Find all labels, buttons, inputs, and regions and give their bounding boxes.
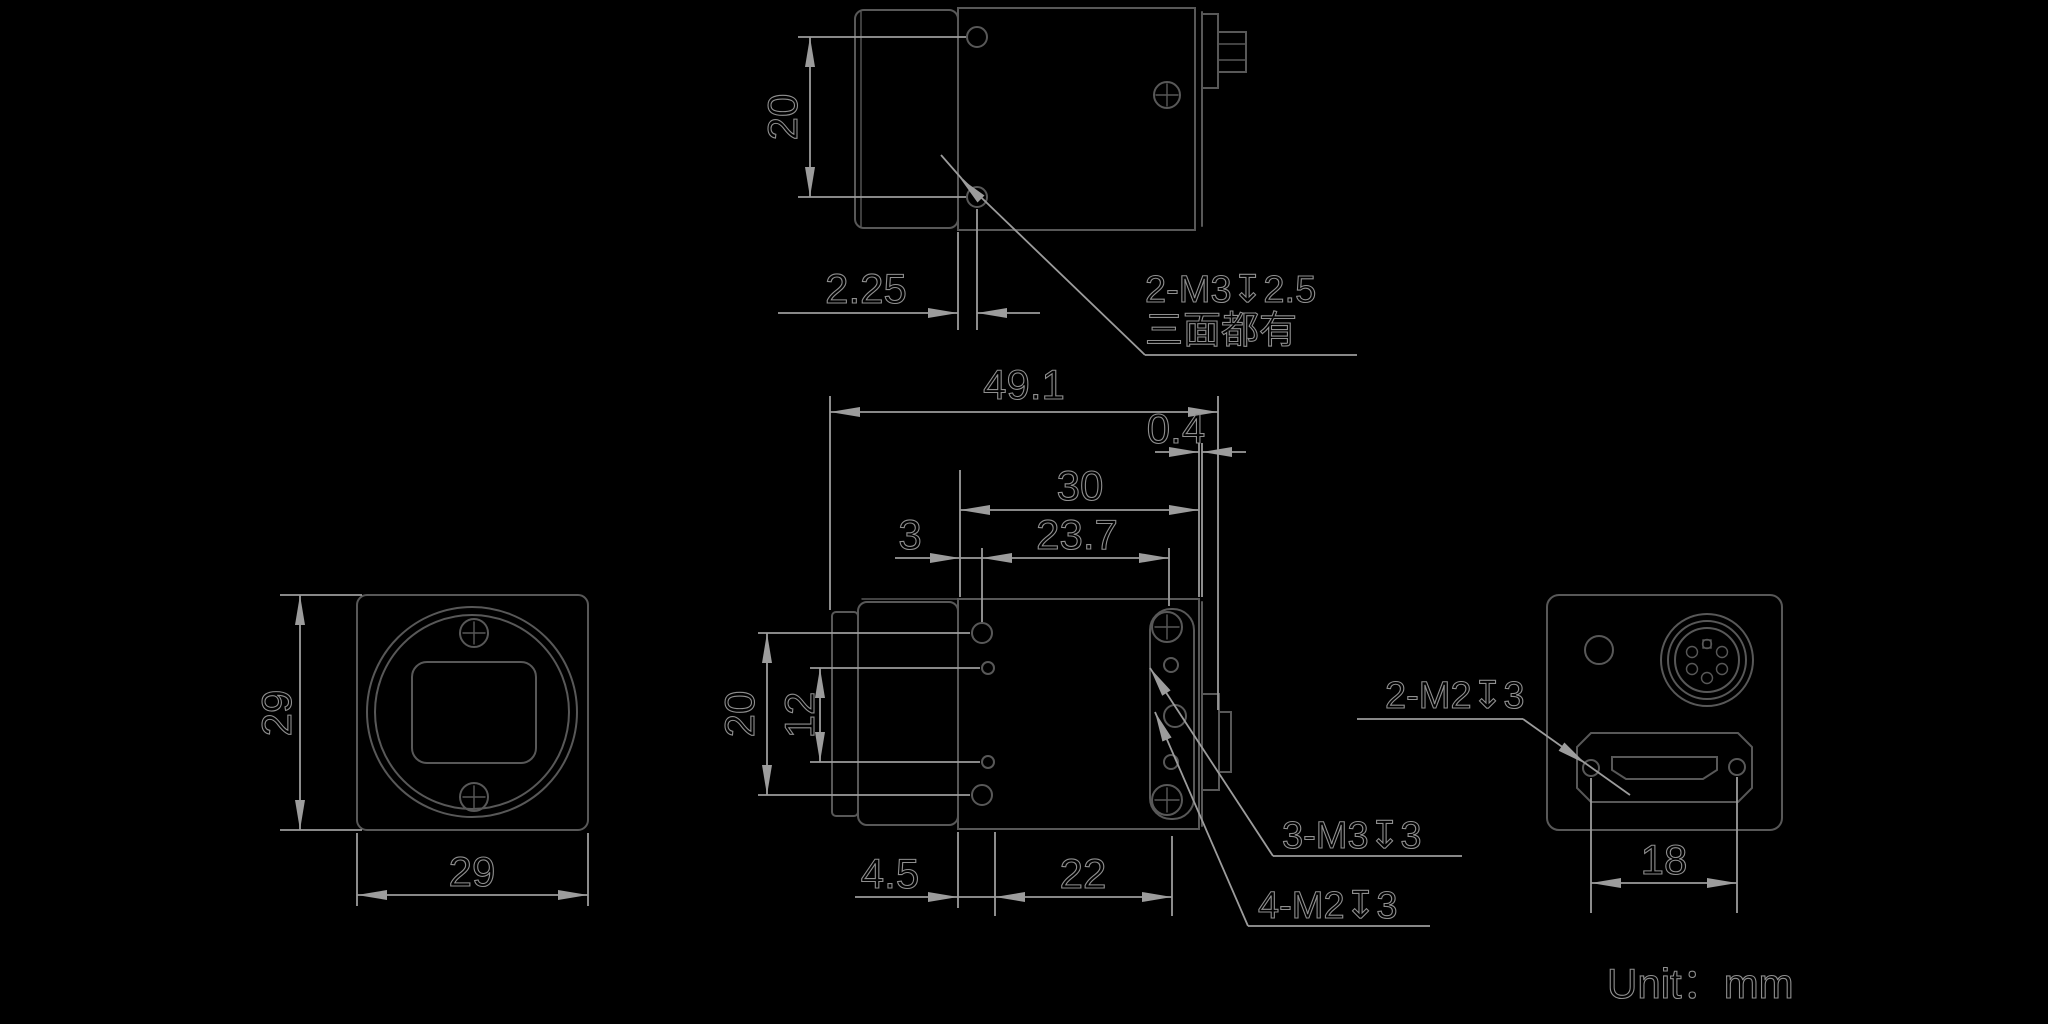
back-plate-m3-hole xyxy=(1164,705,1186,727)
side-view: 49.1 0.4 30 3 23 xyxy=(716,361,1462,927)
connector-pin xyxy=(1687,664,1698,675)
side-view-lens-flange xyxy=(832,612,858,816)
dim-label-top-20: 20 xyxy=(759,94,806,141)
dim-label-12: 12 xyxy=(776,692,823,739)
usb-screw-hole xyxy=(1729,759,1745,775)
front-view: 29 29 xyxy=(253,595,588,906)
note-m2-thread: 4-M2↧3 xyxy=(1258,885,1398,927)
camera-dimension-drawing: 20 2.25 2-M3↧2.5 三面都有 xyxy=(0,0,2048,1024)
top-view-front-plate xyxy=(855,10,958,228)
lens-mount-inner-circle xyxy=(375,615,569,809)
dim-label-49-1: 49.1 xyxy=(983,361,1065,408)
dim-label-3: 3 xyxy=(898,511,921,558)
dim-side-inner-spacing: 12 xyxy=(776,668,980,762)
dim-label-0-4: 0.4 xyxy=(1147,405,1205,452)
back-view: 2-M2↧3 18 xyxy=(1357,595,1782,913)
dim-label-22: 22 xyxy=(1060,850,1107,897)
side-view-body xyxy=(958,599,1199,829)
note-top-thread-line2: 三面都有 xyxy=(1145,310,1297,352)
usb-port-shape xyxy=(1612,757,1717,779)
dim-usb-screw-span: 18 xyxy=(1591,777,1737,913)
note-top-thread-line1: 2-M3↧2.5 xyxy=(1145,269,1316,311)
dim-label-30: 30 xyxy=(1057,462,1104,509)
dim-label-2-25: 2.25 xyxy=(825,265,907,312)
technical-drawing-page: 20 2.25 2-M3↧2.5 三面都有 xyxy=(0,0,2048,1024)
top-view-body xyxy=(958,8,1195,230)
sensor-aperture xyxy=(412,662,536,763)
side-face-m2-hole xyxy=(982,756,994,768)
connector-pin xyxy=(1703,640,1712,649)
usb-recess-outline xyxy=(1577,733,1752,802)
lens-mount-outer-circle xyxy=(367,607,577,817)
dim-bottom-holes: 4.5 22 xyxy=(855,832,1172,916)
top-view-connector-step xyxy=(1202,14,1218,88)
connector-pin xyxy=(1687,647,1698,658)
dim-side-hole-spacing: 20 xyxy=(716,633,970,795)
top-view: 20 2.25 2-M3↧2.5 三面都有 xyxy=(759,8,1357,355)
side-face-m2-hole xyxy=(982,662,994,674)
dim-front-height: 29 xyxy=(253,595,362,830)
top-face-m3-hole xyxy=(967,27,987,47)
note-m3-thread: 3-M3↧3 xyxy=(1282,815,1422,857)
connector-pin xyxy=(1717,647,1728,658)
connector-pin xyxy=(1702,673,1713,684)
back-plate-m2-hole xyxy=(1164,658,1178,672)
back-view-body xyxy=(1547,595,1782,830)
dim-label-side-20: 20 xyxy=(716,691,763,738)
dim-hole-span-and-offset: 3 23.7 xyxy=(895,511,1169,622)
note-back-m2-thread: 2-M2↧3 xyxy=(1385,675,1525,717)
front-view-body xyxy=(357,595,588,830)
side-face-m3-hole xyxy=(972,623,992,643)
dim-top-hole-spacing: 20 xyxy=(759,37,966,197)
dim-label-29-width: 29 xyxy=(449,848,496,895)
dim-label-18: 18 xyxy=(1641,836,1688,883)
unit-label: Unit：mm xyxy=(1607,960,1794,1007)
dim-back-gap: 0.4 xyxy=(1147,405,1246,597)
m8-connector xyxy=(1661,614,1753,706)
usb-connector xyxy=(1577,733,1752,802)
dim-label-29-height: 29 xyxy=(253,690,300,737)
dim-label-23-7: 23.7 xyxy=(1036,511,1118,558)
connector-pin xyxy=(1717,664,1728,675)
side-face-m3-hole xyxy=(972,785,992,805)
top-view-usb-plug-profile xyxy=(1218,32,1246,72)
side-view-connector-step xyxy=(1202,694,1219,790)
dim-label-4-5: 4.5 xyxy=(861,850,919,897)
leader-top-thread-note: 2-M3↧2.5 三面都有 xyxy=(941,155,1357,355)
dim-front-width: 29 xyxy=(357,833,588,906)
led-indicator xyxy=(1585,636,1613,664)
side-view-front-plate xyxy=(858,602,958,825)
side-view-usb-plug-profile xyxy=(1219,712,1231,772)
